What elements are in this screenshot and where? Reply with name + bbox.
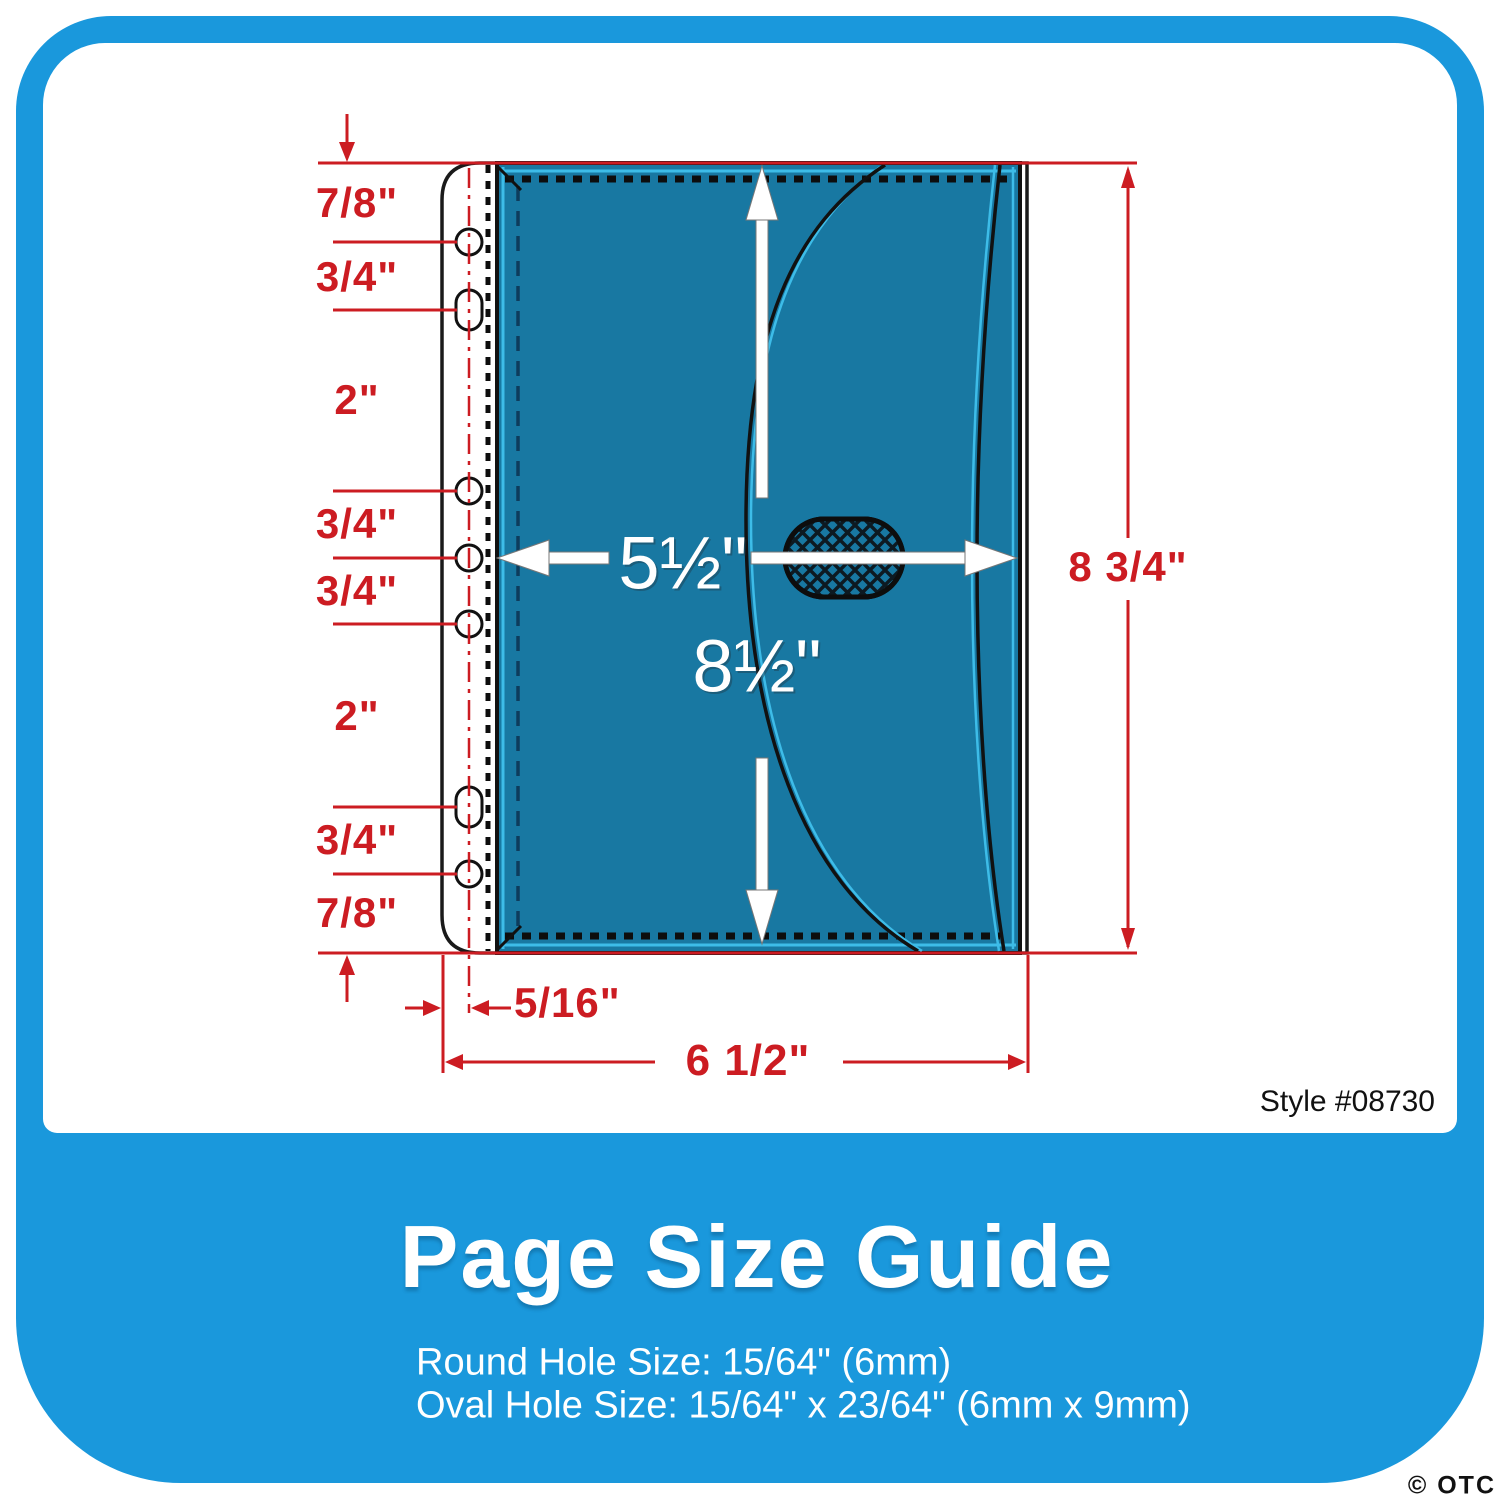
sheet-height-label: 8 3/4": [1068, 543, 1187, 591]
round-hole-size-note: Round Hole Size: 15/64" (6mm): [416, 1342, 951, 1385]
hole-offset-label: 5/16": [514, 979, 621, 1027]
hole-spacing-label: 3/4": [316, 500, 398, 548]
page-title: Page Size Guide: [400, 1206, 1115, 1308]
hole-spacing-label: 3/4": [316, 816, 398, 864]
hole-spacing-label: 3/4": [316, 253, 398, 301]
pocket-height-label: 8½": [692, 624, 821, 709]
page-size-guide-card: 7/8" 3/4" 2" 3/4" 3/4" 2" 3/4" 7/8" 5½" …: [0, 0, 1500, 1500]
otc-watermark: © OTC: [1408, 1472, 1496, 1500]
oval-hole-size-note: Oval Hole Size: 15/64" x 23/64" (6mm x 9…: [416, 1385, 1191, 1428]
pocket-width-label: 5½": [618, 521, 747, 606]
hole-spacing-label: 2": [334, 692, 379, 740]
hole-spacing-label: 7/8": [316, 889, 398, 937]
sheet-width-label: 6 1/2": [686, 1036, 811, 1086]
hole-spacing-label: 7/8": [316, 179, 398, 227]
diagram-panel: [43, 43, 1457, 1133]
style-number: Style #08730: [1260, 1085, 1435, 1119]
hole-spacing-label: 3/4": [316, 567, 398, 615]
hole-spacing-label: 2": [334, 376, 379, 424]
